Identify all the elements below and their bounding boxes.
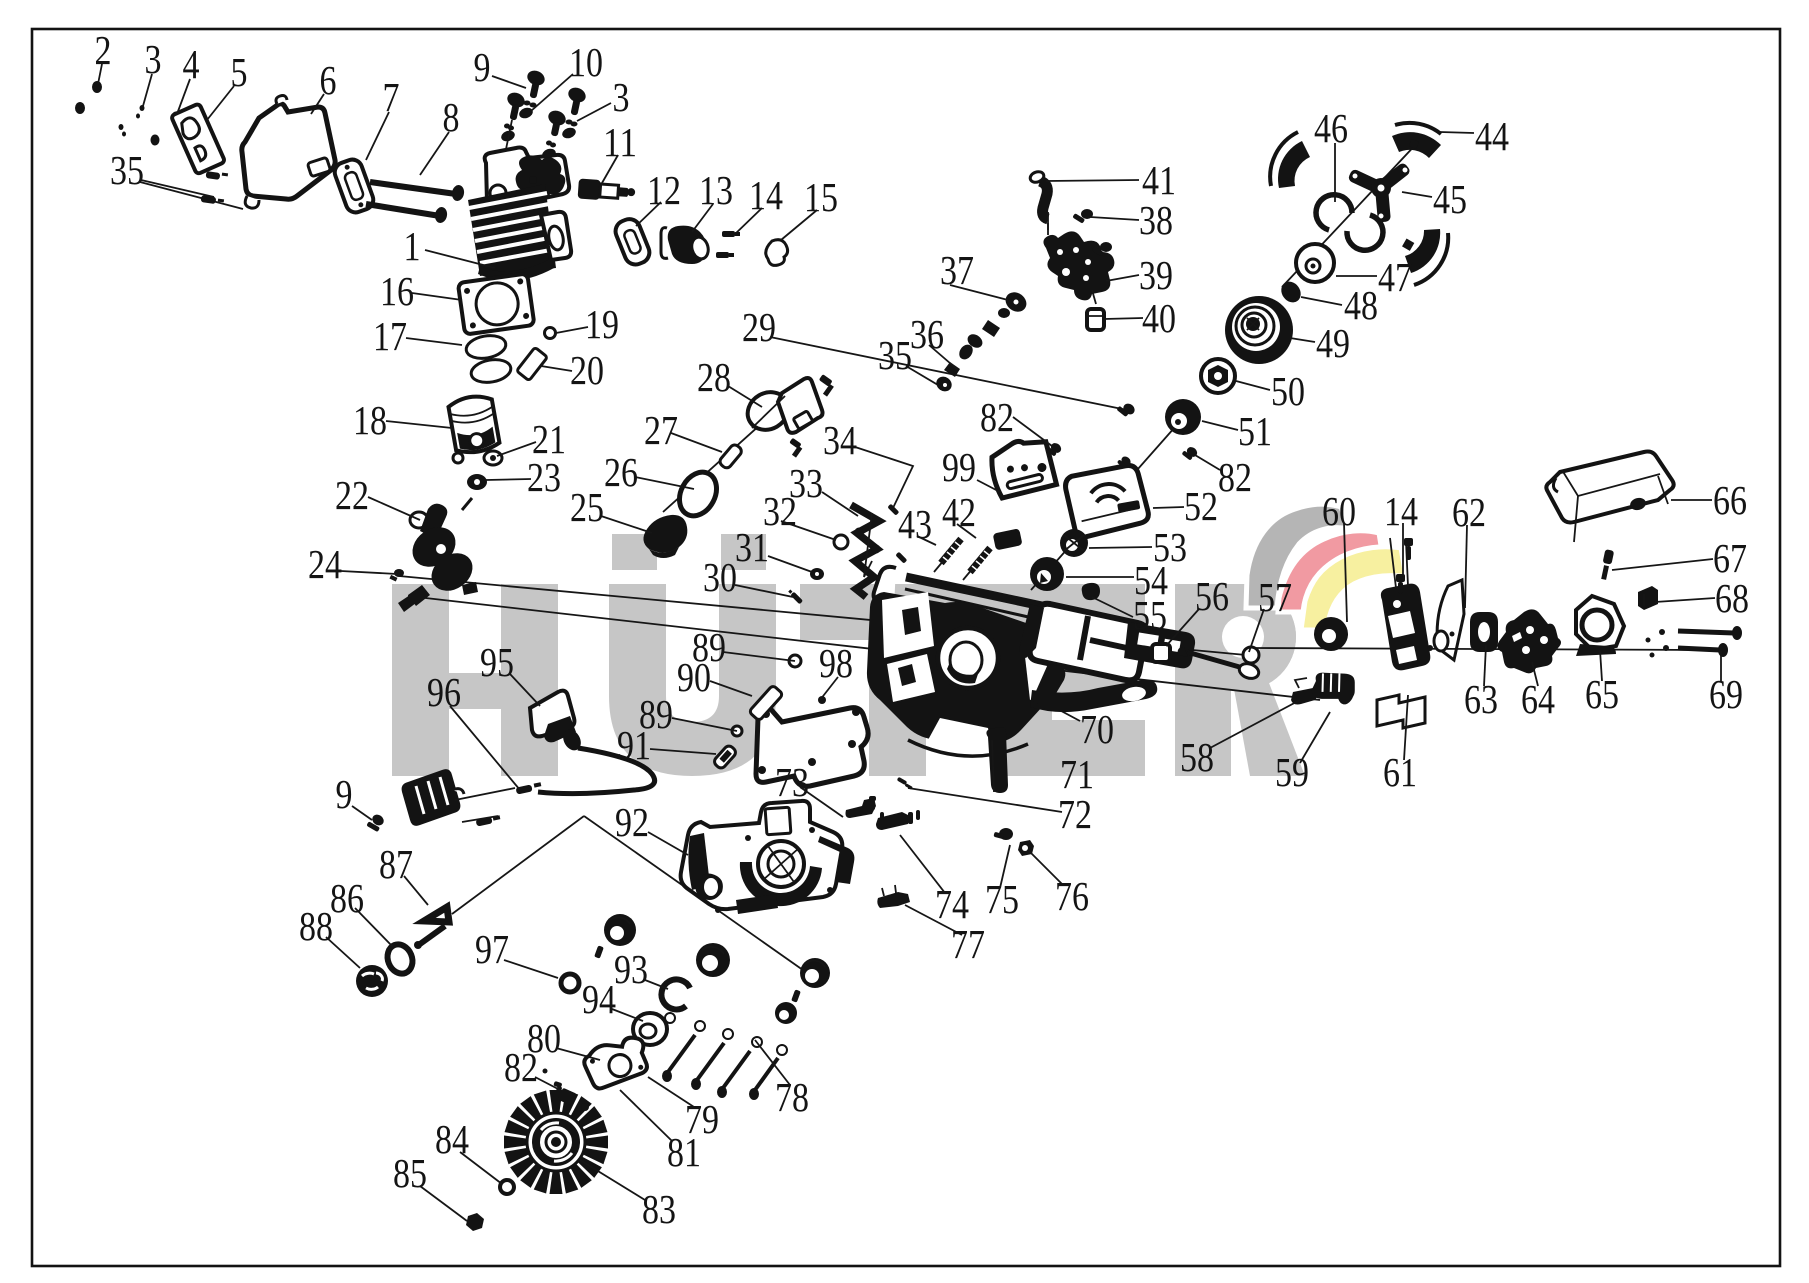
svg-text:22: 22 <box>335 472 369 518</box>
svg-text:6: 6 <box>320 57 337 103</box>
svg-text:82: 82 <box>504 1044 538 1090</box>
svg-text:61: 61 <box>1383 749 1417 795</box>
svg-text:52: 52 <box>1184 483 1218 529</box>
svg-text:87: 87 <box>379 841 413 887</box>
svg-text:25: 25 <box>570 484 604 530</box>
svg-text:81: 81 <box>667 1129 701 1175</box>
svg-text:69: 69 <box>1709 671 1743 717</box>
svg-text:46: 46 <box>1314 105 1348 151</box>
svg-text:24: 24 <box>308 541 342 587</box>
svg-text:4: 4 <box>183 41 200 87</box>
svg-text:73: 73 <box>775 759 809 805</box>
svg-text:9: 9 <box>474 44 491 90</box>
svg-text:64: 64 <box>1521 676 1555 722</box>
svg-text:90: 90 <box>677 654 711 700</box>
svg-text:50: 50 <box>1271 368 1305 414</box>
svg-text:88: 88 <box>299 903 333 949</box>
svg-text:60: 60 <box>1322 488 1356 534</box>
svg-text:97: 97 <box>475 926 509 972</box>
svg-text:3: 3 <box>613 74 630 120</box>
svg-text:84: 84 <box>435 1116 469 1162</box>
svg-text:34: 34 <box>823 417 857 463</box>
svg-text:98: 98 <box>819 640 853 686</box>
svg-text:8: 8 <box>443 94 460 140</box>
svg-text:99: 99 <box>942 444 976 490</box>
svg-text:72: 72 <box>1058 791 1092 837</box>
svg-text:76: 76 <box>1055 873 1089 919</box>
svg-text:82: 82 <box>1218 454 1252 500</box>
svg-text:35: 35 <box>878 332 912 378</box>
svg-text:49: 49 <box>1316 320 1350 366</box>
svg-text:96: 96 <box>427 669 461 715</box>
svg-text:82: 82 <box>980 394 1014 440</box>
svg-text:56: 56 <box>1195 573 1229 619</box>
svg-text:20: 20 <box>570 347 604 393</box>
svg-text:86: 86 <box>330 875 364 921</box>
svg-text:55: 55 <box>1133 592 1167 638</box>
svg-text:12: 12 <box>647 167 681 213</box>
svg-text:57: 57 <box>1258 574 1292 620</box>
svg-text:65: 65 <box>1585 671 1619 717</box>
svg-text:66: 66 <box>1713 477 1747 523</box>
svg-text:45: 45 <box>1433 176 1467 222</box>
svg-text:29: 29 <box>742 304 776 350</box>
svg-text:23: 23 <box>527 454 561 500</box>
svg-text:26: 26 <box>604 449 638 495</box>
svg-text:42: 42 <box>942 489 976 535</box>
svg-text:18: 18 <box>353 397 387 443</box>
svg-text:16: 16 <box>380 268 414 314</box>
svg-text:1: 1 <box>404 223 421 269</box>
svg-text:17: 17 <box>373 313 407 359</box>
svg-text:77: 77 <box>951 921 985 967</box>
svg-text:51: 51 <box>1238 408 1272 454</box>
svg-text:39: 39 <box>1139 252 1173 298</box>
svg-text:9: 9 <box>336 771 353 817</box>
svg-text:30: 30 <box>703 554 737 600</box>
svg-text:35: 35 <box>110 147 144 193</box>
svg-text:3: 3 <box>145 36 162 82</box>
svg-text:47: 47 <box>1378 254 1412 300</box>
svg-text:2: 2 <box>95 27 112 73</box>
svg-text:68: 68 <box>1715 575 1749 621</box>
svg-text:59: 59 <box>1275 749 1309 795</box>
svg-text:28: 28 <box>697 354 731 400</box>
svg-text:75: 75 <box>985 876 1019 922</box>
svg-text:43: 43 <box>898 501 932 547</box>
svg-text:37: 37 <box>940 247 974 293</box>
svg-text:31: 31 <box>735 524 769 570</box>
svg-text:19: 19 <box>585 301 619 347</box>
svg-text:70: 70 <box>1080 706 1114 752</box>
svg-text:63: 63 <box>1464 676 1498 722</box>
svg-text:62: 62 <box>1452 489 1486 535</box>
svg-text:11: 11 <box>603 119 637 165</box>
svg-text:92: 92 <box>615 799 649 845</box>
svg-text:14: 14 <box>749 172 783 218</box>
svg-text:10: 10 <box>569 39 603 85</box>
svg-text:40: 40 <box>1142 295 1176 341</box>
svg-text:5: 5 <box>231 49 248 95</box>
svg-text:93: 93 <box>614 946 648 992</box>
svg-text:36: 36 <box>910 311 944 357</box>
svg-text:44: 44 <box>1475 113 1509 159</box>
svg-text:94: 94 <box>582 976 616 1022</box>
svg-text:91: 91 <box>617 722 651 768</box>
svg-text:7: 7 <box>383 74 400 120</box>
svg-text:95: 95 <box>480 639 514 685</box>
svg-text:85: 85 <box>393 1150 427 1196</box>
svg-text:58: 58 <box>1180 734 1214 780</box>
svg-text:27: 27 <box>644 407 678 453</box>
svg-text:14: 14 <box>1384 488 1418 534</box>
svg-text:38: 38 <box>1139 197 1173 243</box>
svg-text:78: 78 <box>775 1074 809 1120</box>
svg-text:83: 83 <box>642 1186 676 1232</box>
svg-text:13: 13 <box>699 167 733 213</box>
svg-text:15: 15 <box>804 174 838 220</box>
